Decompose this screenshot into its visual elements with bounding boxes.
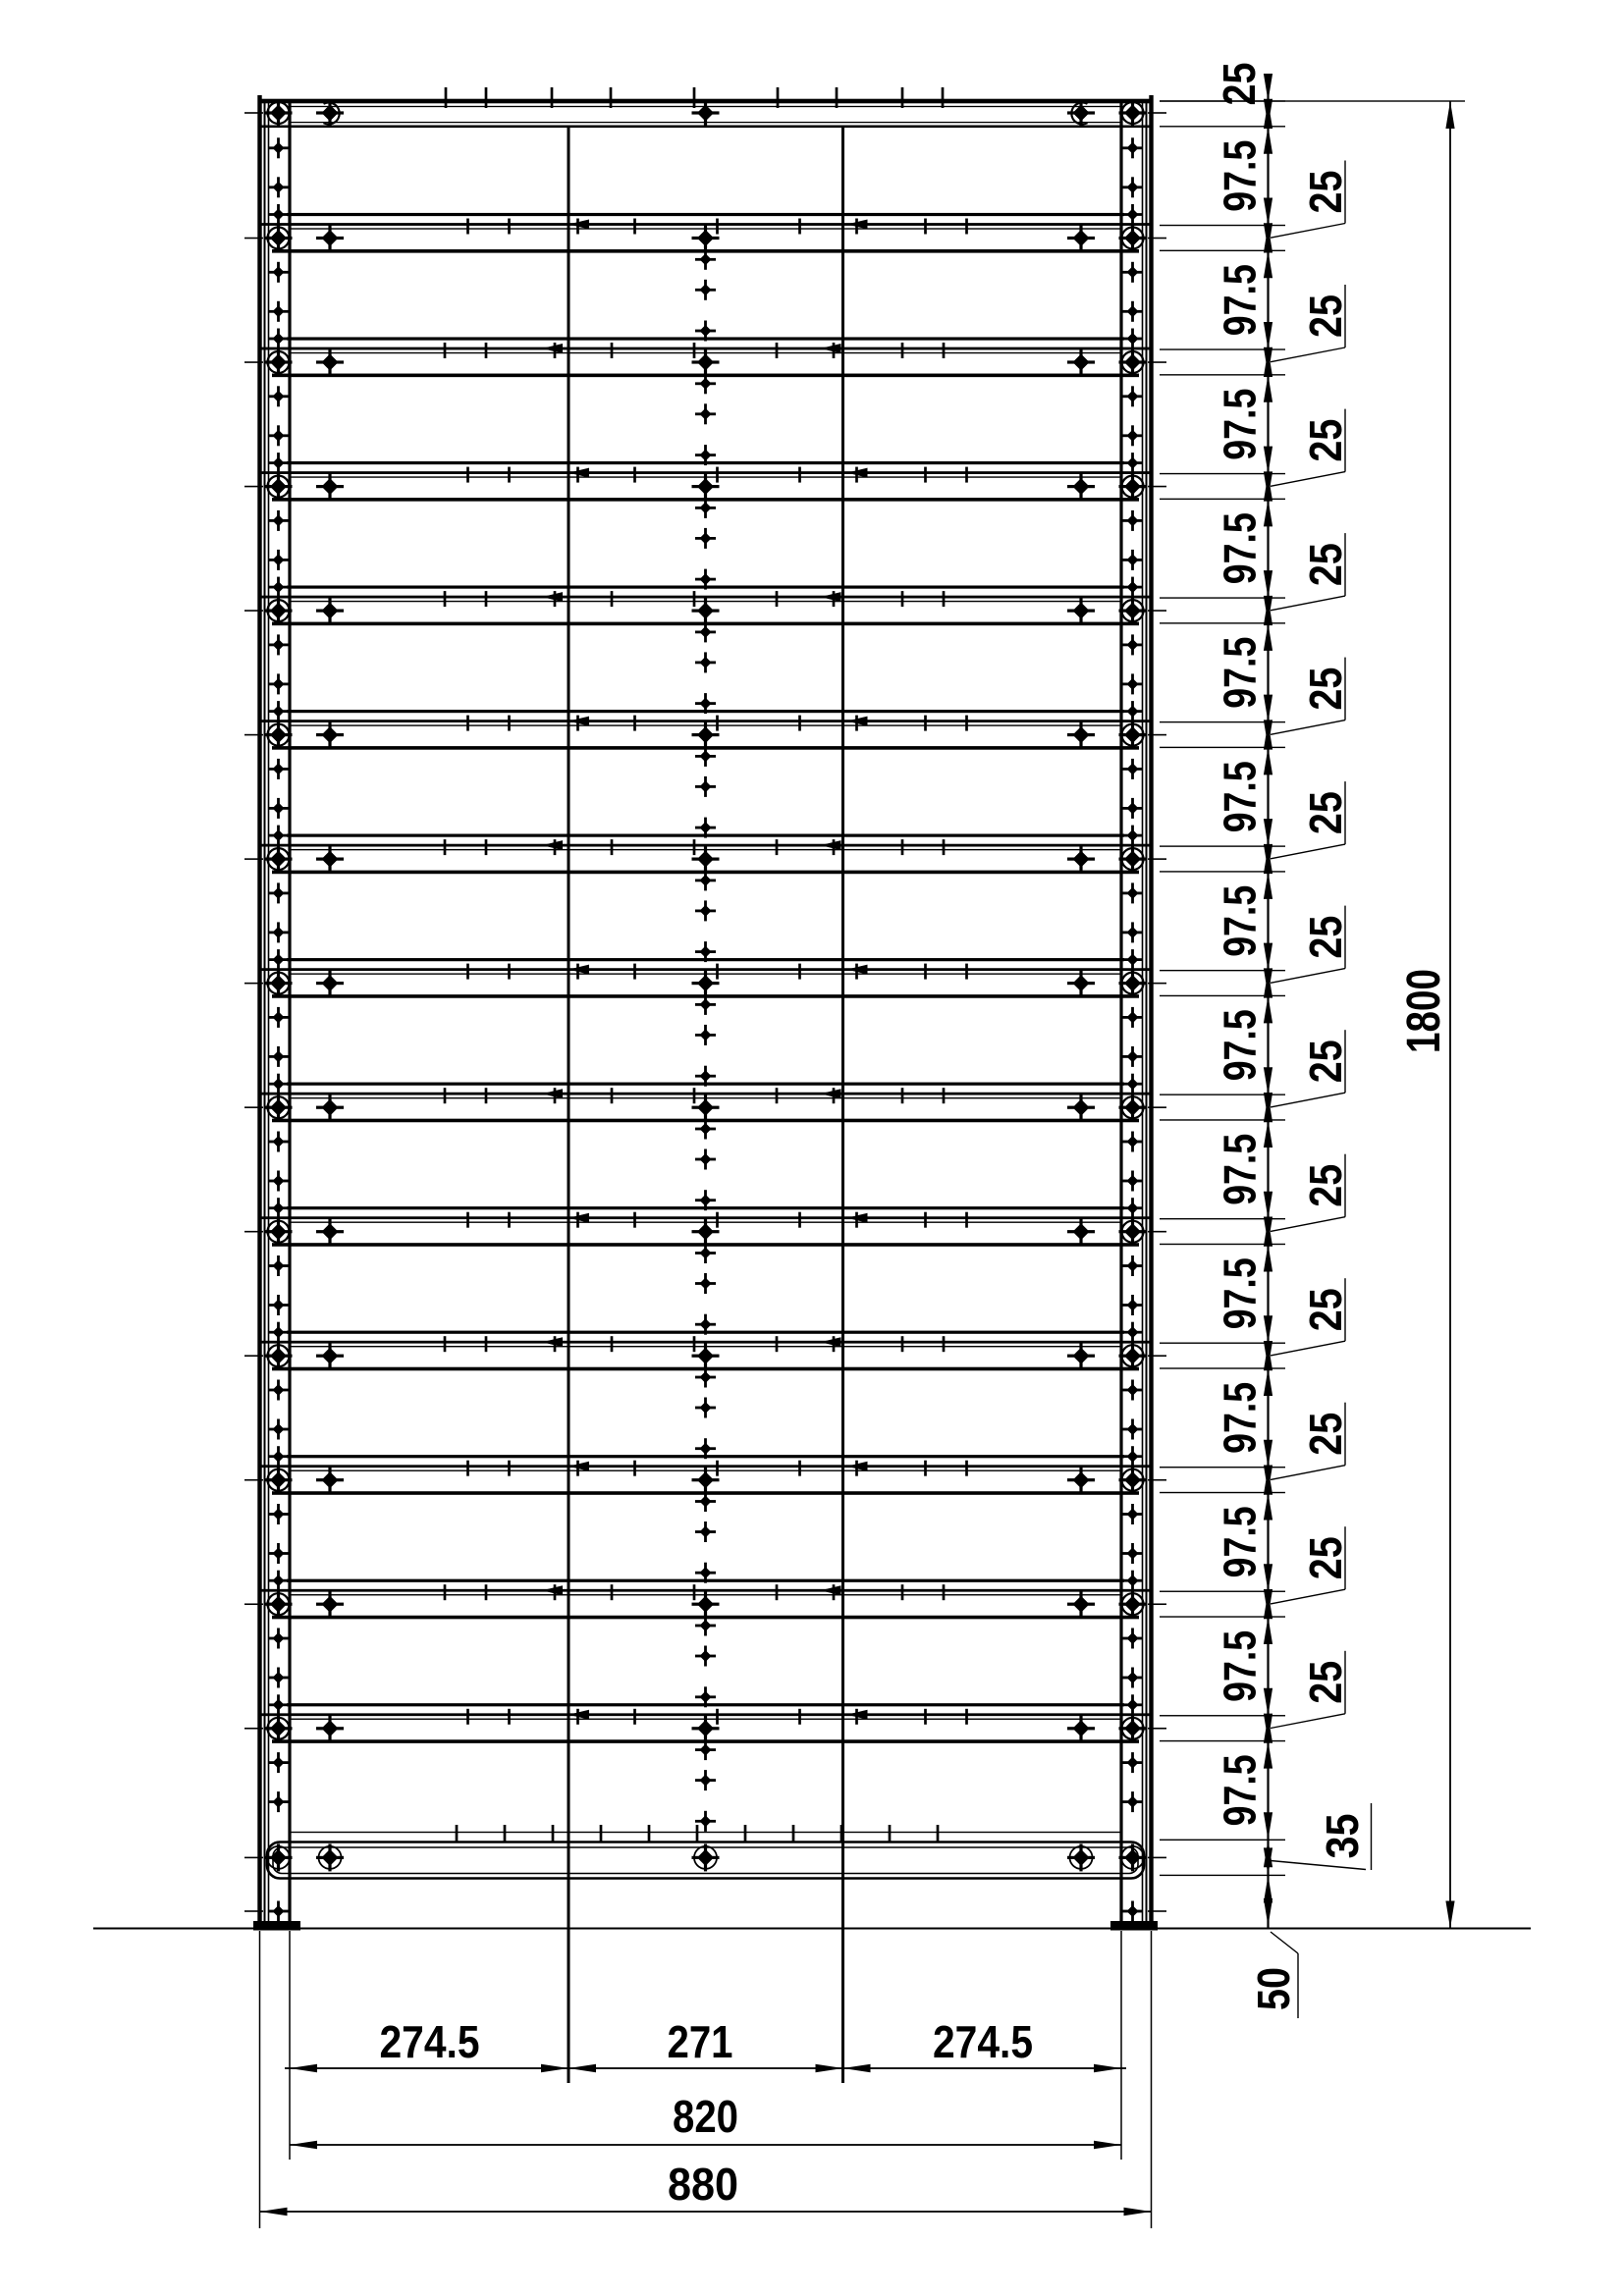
svg-text:97.5: 97.5 — [1215, 885, 1266, 957]
svg-text:97.5: 97.5 — [1215, 1506, 1266, 1577]
svg-text:97.5: 97.5 — [1215, 1009, 1266, 1081]
svg-text:25: 25 — [1300, 791, 1351, 834]
svg-text:25: 25 — [1300, 419, 1351, 462]
svg-text:25: 25 — [1300, 667, 1351, 711]
svg-text:97.5: 97.5 — [1215, 761, 1266, 832]
svg-text:97.5: 97.5 — [1215, 1630, 1266, 1702]
svg-text:25: 25 — [1300, 1661, 1351, 1704]
svg-text:50: 50 — [1248, 1967, 1299, 2010]
svg-text:820: 820 — [673, 2091, 738, 2142]
svg-text:1800: 1800 — [1398, 969, 1450, 1053]
svg-text:97.5: 97.5 — [1215, 1754, 1266, 1826]
svg-text:97.5: 97.5 — [1215, 1134, 1266, 1205]
svg-text:25: 25 — [1300, 1288, 1351, 1331]
svg-text:97.5: 97.5 — [1215, 389, 1266, 460]
svg-text:25: 25 — [1300, 294, 1351, 338]
svg-text:25: 25 — [1300, 543, 1351, 586]
svg-text:97.5: 97.5 — [1215, 637, 1266, 709]
svg-text:97.5: 97.5 — [1215, 512, 1266, 584]
svg-text:25: 25 — [1300, 1040, 1351, 1083]
svg-text:880: 880 — [668, 2159, 738, 2210]
svg-text:25: 25 — [1300, 1536, 1351, 1579]
svg-text:25: 25 — [1214, 63, 1265, 106]
svg-text:97.5: 97.5 — [1215, 140, 1266, 212]
svg-text:97.5: 97.5 — [1215, 264, 1266, 336]
svg-text:274.5: 274.5 — [933, 2016, 1033, 2067]
svg-text:97.5: 97.5 — [1215, 1382, 1266, 1454]
svg-text:25: 25 — [1300, 1164, 1351, 1207]
svg-text:274.5: 274.5 — [380, 2016, 480, 2067]
svg-text:25: 25 — [1300, 916, 1351, 959]
svg-text:25: 25 — [1300, 1413, 1351, 1456]
svg-text:97.5: 97.5 — [1215, 1257, 1266, 1329]
svg-text:25: 25 — [1300, 171, 1351, 214]
svg-text:271: 271 — [668, 2016, 733, 2067]
svg-text:35: 35 — [1317, 1814, 1368, 1859]
